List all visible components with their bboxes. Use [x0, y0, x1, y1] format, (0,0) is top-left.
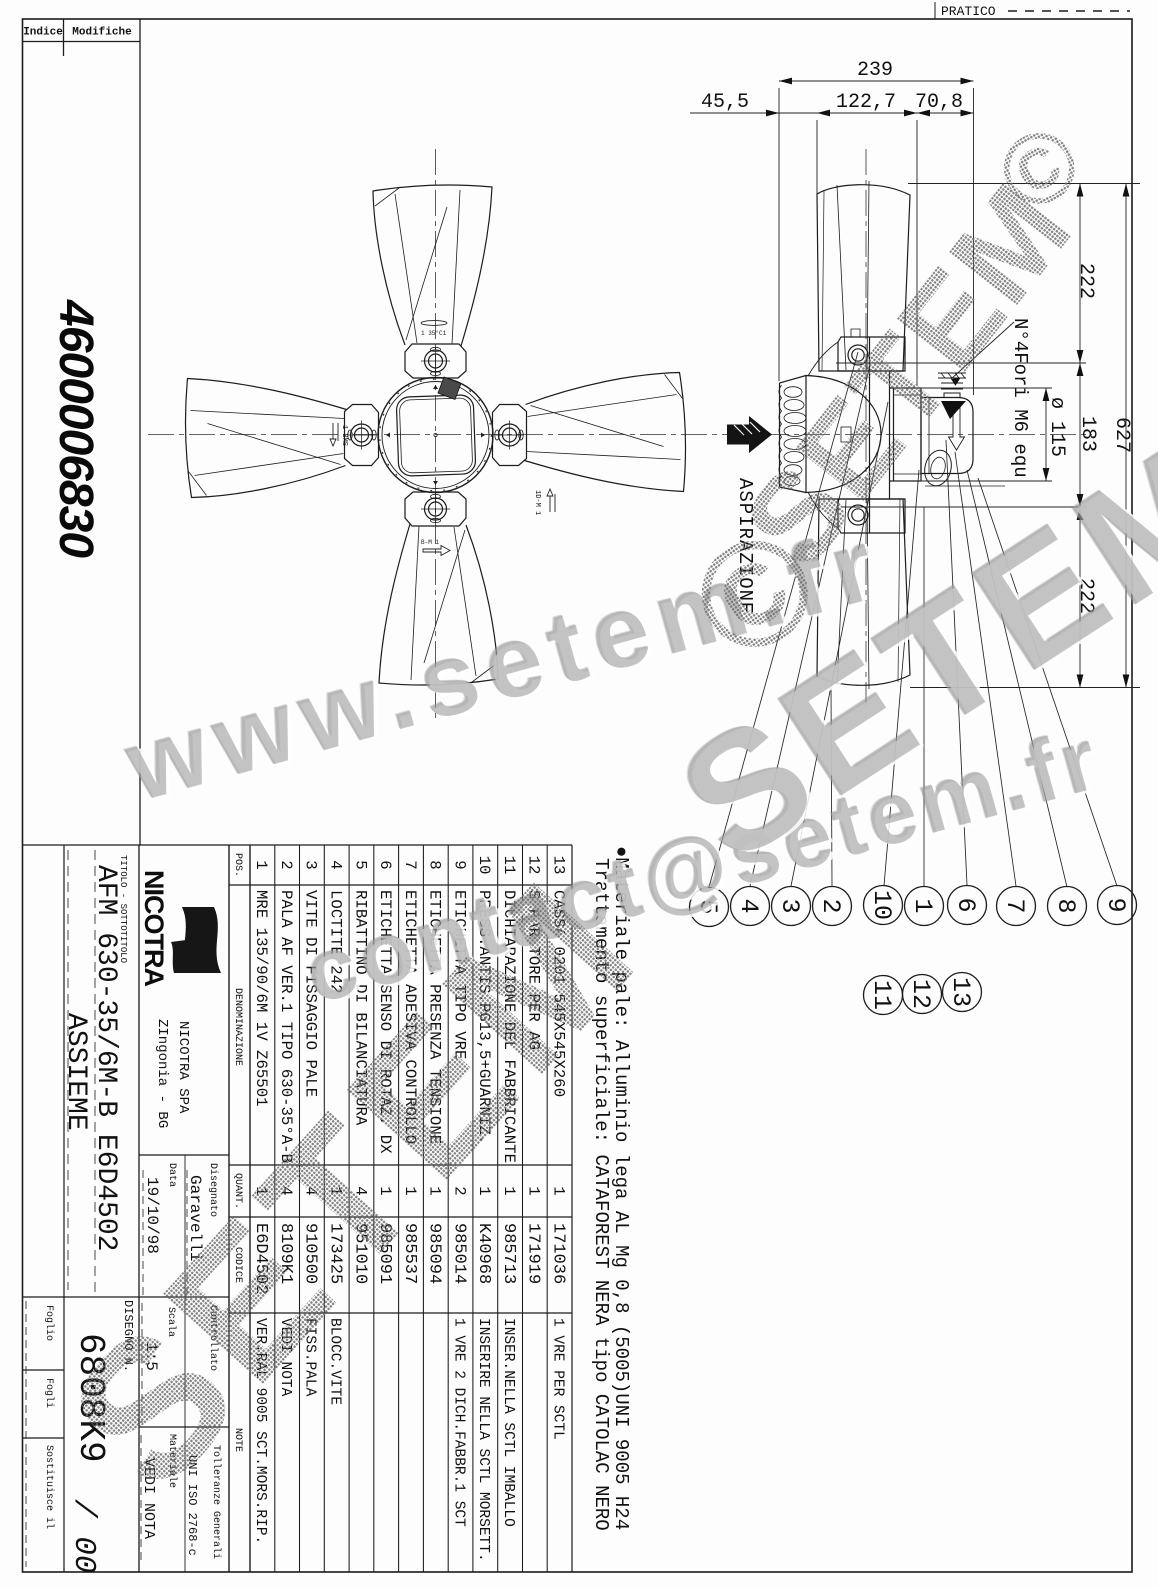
svg-text:8: 8 — [426, 860, 444, 869]
svg-text:9: 9 — [1101, 897, 1130, 912]
svg-text:1: 1 — [525, 1186, 543, 1195]
svg-text:K40968: K40968 — [474, 1223, 493, 1284]
svg-text:ø 115: ø 115 — [1045, 397, 1068, 457]
svg-text:INSER.NELLA SCTL IMBALLO: INSER.NELLA SCTL IMBALLO — [500, 1318, 516, 1527]
svg-text:2: 2 — [816, 898, 845, 913]
svg-text:1: 1 — [500, 1186, 518, 1195]
svg-text:3: 3 — [775, 898, 804, 913]
svg-text:B-M 1: B-M 1 — [421, 539, 439, 546]
svg-text:12: 12 — [906, 979, 935, 1009]
svg-text:1: 1 — [549, 1186, 567, 1195]
svg-text:6: 6 — [376, 860, 394, 869]
svg-text:Data: Data — [166, 1163, 177, 1187]
svg-text:POS.: POS. — [232, 853, 243, 877]
svg-text:DENOMINAZIONE: DENOMINAZIONE — [232, 988, 243, 1066]
svg-text:10: 10 — [867, 890, 896, 920]
svg-text:2: 2 — [277, 860, 295, 869]
svg-text:4600006830: 4600006830 — [49, 299, 102, 558]
svg-text:45,5: 45,5 — [701, 91, 749, 114]
svg-text:8: 8 — [1051, 898, 1080, 913]
svg-text:6: 6 — [951, 897, 980, 912]
svg-text:1 3MS: 1 3MS — [340, 425, 348, 446]
svg-text:5: 5 — [351, 860, 369, 869]
svg-text:1: 1 — [252, 860, 270, 869]
svg-text:122,7: 122,7 — [836, 91, 896, 114]
svg-text:3: 3 — [302, 860, 320, 869]
svg-text:PRATICO: PRATICO — [941, 4, 996, 19]
svg-text:/ 00: / 00 — [66, 1499, 101, 1573]
svg-text:1D-M 1: 1D-M 1 — [533, 490, 541, 515]
svg-text:1 35°C1: 1 35°C1 — [421, 330, 447, 337]
svg-text:1: 1 — [908, 898, 937, 913]
svg-text:Foglio: Foglio — [43, 1305, 55, 1341]
svg-text:Sostituisce il: Sostituisce il — [43, 1445, 55, 1529]
svg-text:171919: 171919 — [524, 1223, 543, 1284]
svg-text:ZIngonia - BG: ZIngonia - BG — [154, 1019, 170, 1128]
svg-text:ASSIEME: ASSIEME — [60, 1013, 91, 1131]
svg-text:7: 7 — [1000, 898, 1029, 913]
svg-text:13: 13 — [946, 977, 975, 1007]
svg-text:70,8: 70,8 — [915, 91, 963, 114]
svg-text:NICOTRA: NICOTRA — [139, 870, 169, 986]
svg-text:4: 4 — [327, 860, 345, 869]
svg-text:Modifiche: Modifiche — [72, 27, 132, 39]
svg-text:INSERIRE NELLA SCTL MORSETT.: INSERIRE NELLA SCTL MORSETT. — [475, 1318, 491, 1562]
svg-text:7: 7 — [401, 860, 419, 869]
svg-text:11: 11 — [867, 980, 896, 1010]
svg-text:9: 9 — [450, 860, 468, 869]
svg-text:985713: 985713 — [499, 1223, 518, 1284]
svg-text:Indice: Indice — [23, 27, 63, 39]
svg-text:MRE 135/90/6M 1V Z65501: MRE 135/90/6M 1V Z65501 — [252, 890, 270, 1107]
svg-text:1 VRE PER SCTL: 1 VRE PER SCTL — [549, 1318, 565, 1440]
svg-text:AFM 630-35/6M-B E6D4502: AFM 630-35/6M-B E6D4502 — [90, 865, 121, 1251]
svg-text:1 VRE 2 DICH.FABBR.1 SCT: 1 VRE 2 DICH.FABBR.1 SCT — [450, 1318, 466, 1527]
svg-text:171036: 171036 — [548, 1223, 567, 1284]
svg-text:NICOTRA SPA: NICOTRA SPA — [175, 1021, 191, 1114]
svg-text:239: 239 — [857, 59, 893, 82]
